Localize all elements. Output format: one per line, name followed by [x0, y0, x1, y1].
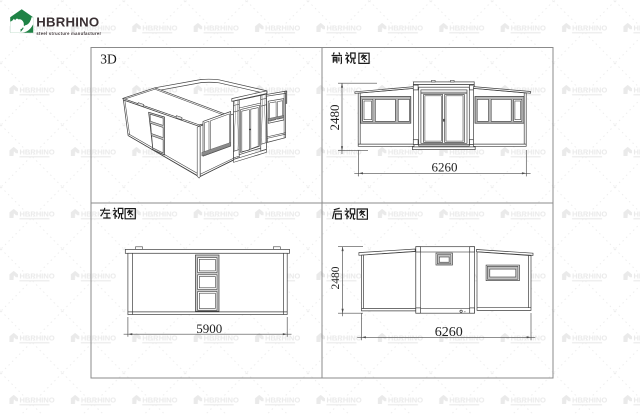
svg-text:3D: 3D	[100, 51, 117, 66]
svg-text:5900: 5900	[196, 321, 222, 336]
svg-text:6260: 6260	[435, 325, 463, 340]
svg-text:steel structure manufacturer: steel structure manufacturer	[36, 31, 101, 36]
svg-text:6260: 6260	[432, 159, 458, 174]
svg-text:2480: 2480	[327, 105, 342, 131]
svg-text:2480: 2480	[330, 266, 342, 289]
svg-text:HBRHINO: HBRHINO	[36, 14, 99, 29]
